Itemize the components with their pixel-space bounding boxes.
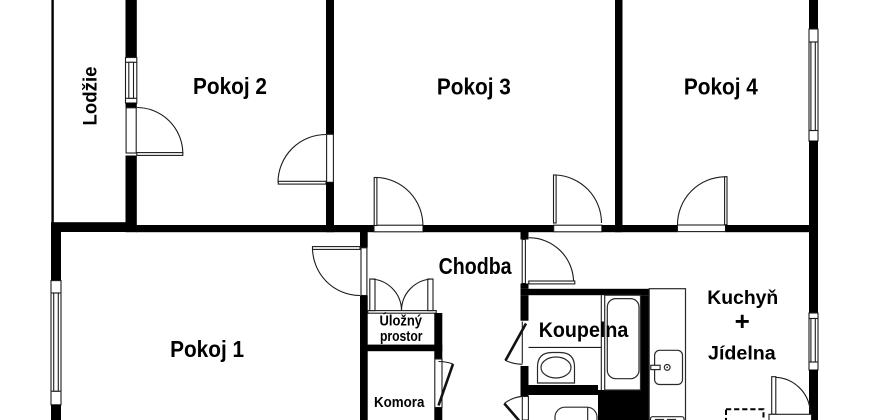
svg-text:Pokoj 1: Pokoj 1 [170, 336, 244, 362]
svg-text:Koupelna: Koupelna [539, 319, 629, 342]
svg-text:Lodžie: Lodžie [80, 66, 102, 125]
svg-text:Jídelna: Jídelna [708, 344, 776, 365]
svg-text:Úložný: Úložný [380, 312, 423, 330]
svg-text:Chodba: Chodba [439, 253, 512, 279]
svg-text:Pokoj 4: Pokoj 4 [684, 73, 758, 99]
svg-text:Pokoj 2: Pokoj 2 [193, 73, 267, 99]
svg-text:prostor: prostor [380, 329, 423, 345]
svg-text:Komora: Komora [374, 395, 425, 411]
svg-text:Pokoj 3: Pokoj 3 [437, 73, 511, 99]
svg-text:+: + [735, 306, 750, 336]
